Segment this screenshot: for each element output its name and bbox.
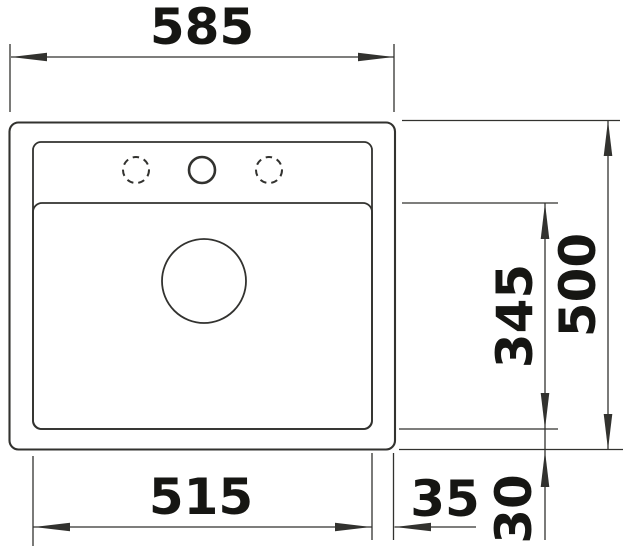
arrow-right-icon [358, 53, 394, 61]
tap-hole-optional-right [256, 157, 282, 183]
label-bowl-depth: 345 [490, 264, 540, 368]
label-bottom-edge-offset: 30 [489, 474, 539, 544]
tap-hole-optional-left [123, 157, 149, 183]
tap-hole-center [189, 157, 215, 183]
bowl-edge [33, 203, 372, 429]
arrow-left-icon [34, 523, 70, 531]
arrow-right-icon [335, 523, 371, 531]
sink-dimension-drawing: 585 515 35 345 500 30 [0, 0, 625, 554]
label-bowl-width: 515 [149, 472, 253, 522]
arrow-down-icon [541, 393, 550, 429]
arrow-up-icon [541, 203, 550, 239]
sink-outer-edge [10, 123, 396, 450]
arrow-up-icon [604, 121, 613, 157]
label-right-edge-offset: 35 [410, 474, 480, 524]
sink-rim-edge [33, 142, 372, 429]
sink-outline [10, 123, 396, 450]
label-overall-depth: 500 [553, 233, 603, 337]
arrow-down-icon [604, 414, 613, 450]
drain-hole [162, 239, 246, 323]
arrow-left-icon [11, 53, 47, 61]
label-overall-width: 585 [150, 2, 254, 52]
